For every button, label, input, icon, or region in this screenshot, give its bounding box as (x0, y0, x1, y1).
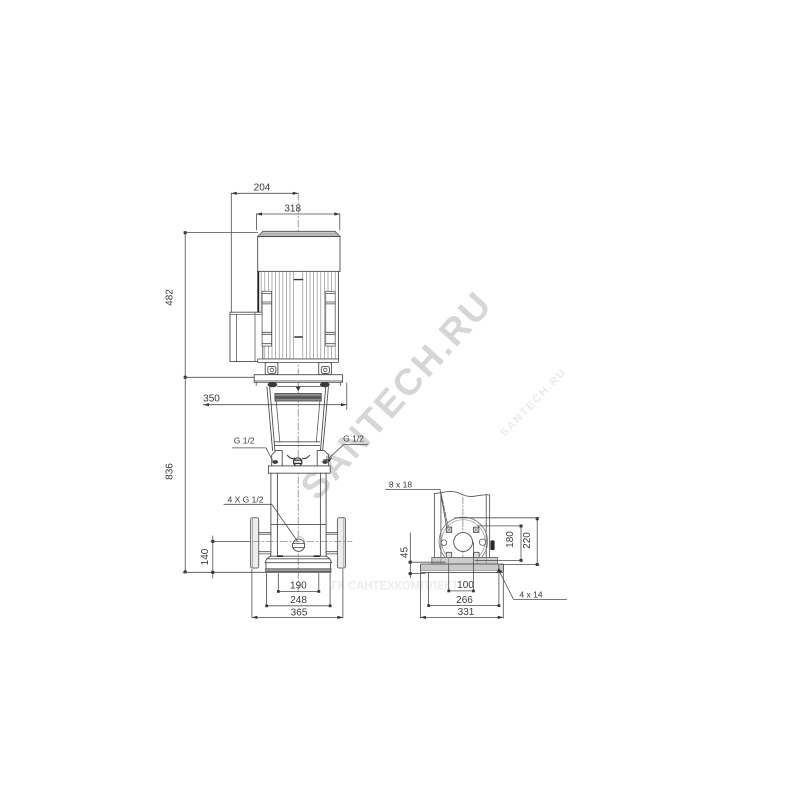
svg-text:100: 100 (457, 580, 474, 591)
svg-text:4 x 14: 4 x 14 (519, 590, 542, 600)
svg-text:836: 836 (165, 463, 176, 480)
svg-text:G 1/2: G 1/2 (234, 436, 255, 446)
svg-text:482: 482 (165, 289, 176, 306)
svg-text:318: 318 (284, 204, 301, 215)
svg-text:266: 266 (456, 595, 473, 606)
svg-text:8 x 18: 8 x 18 (389, 479, 412, 489)
svg-text:4 X G 1/2: 4 X G 1/2 (228, 494, 264, 504)
svg-text:220: 220 (522, 532, 533, 549)
svg-text:190: 190 (290, 580, 307, 591)
svg-text:204: 204 (254, 183, 271, 194)
svg-text:G 1/2: G 1/2 (343, 434, 364, 444)
svg-text:180: 180 (505, 531, 516, 548)
svg-text:331: 331 (458, 607, 475, 618)
svg-text:ГК САНТЕХКОМПЛЕКТ: ГК САНТЕХКОМПЛЕКТ (331, 581, 459, 593)
svg-text:248: 248 (290, 595, 307, 606)
svg-text:45: 45 (400, 547, 411, 559)
svg-text:140: 140 (200, 548, 211, 565)
svg-text:350: 350 (203, 394, 220, 405)
svg-text:365: 365 (291, 608, 308, 619)
